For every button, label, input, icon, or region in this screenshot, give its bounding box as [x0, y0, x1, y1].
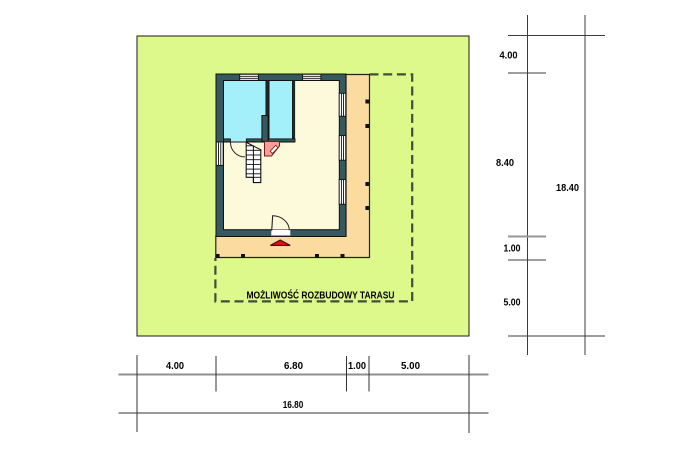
- svg-text:1.00: 1.00: [504, 244, 521, 255]
- svg-text:4.00: 4.00: [500, 51, 518, 62]
- svg-text:5.00: 5.00: [401, 361, 420, 372]
- svg-text:6.80: 6.80: [284, 361, 303, 372]
- svg-text:8.40: 8.40: [496, 158, 514, 169]
- svg-text:16.80: 16.80: [283, 400, 304, 411]
- svg-text:MOŻLIWOŚĆ ROZBUDOWY TARASU: MOŻLIWOŚĆ ROZBUDOWY TARASU: [247, 288, 395, 301]
- svg-text:1.00: 1.00: [348, 361, 366, 372]
- svg-text:5.00: 5.00: [504, 297, 521, 308]
- svg-text:18.40: 18.40: [556, 183, 579, 194]
- svg-text:4.00: 4.00: [166, 361, 184, 372]
